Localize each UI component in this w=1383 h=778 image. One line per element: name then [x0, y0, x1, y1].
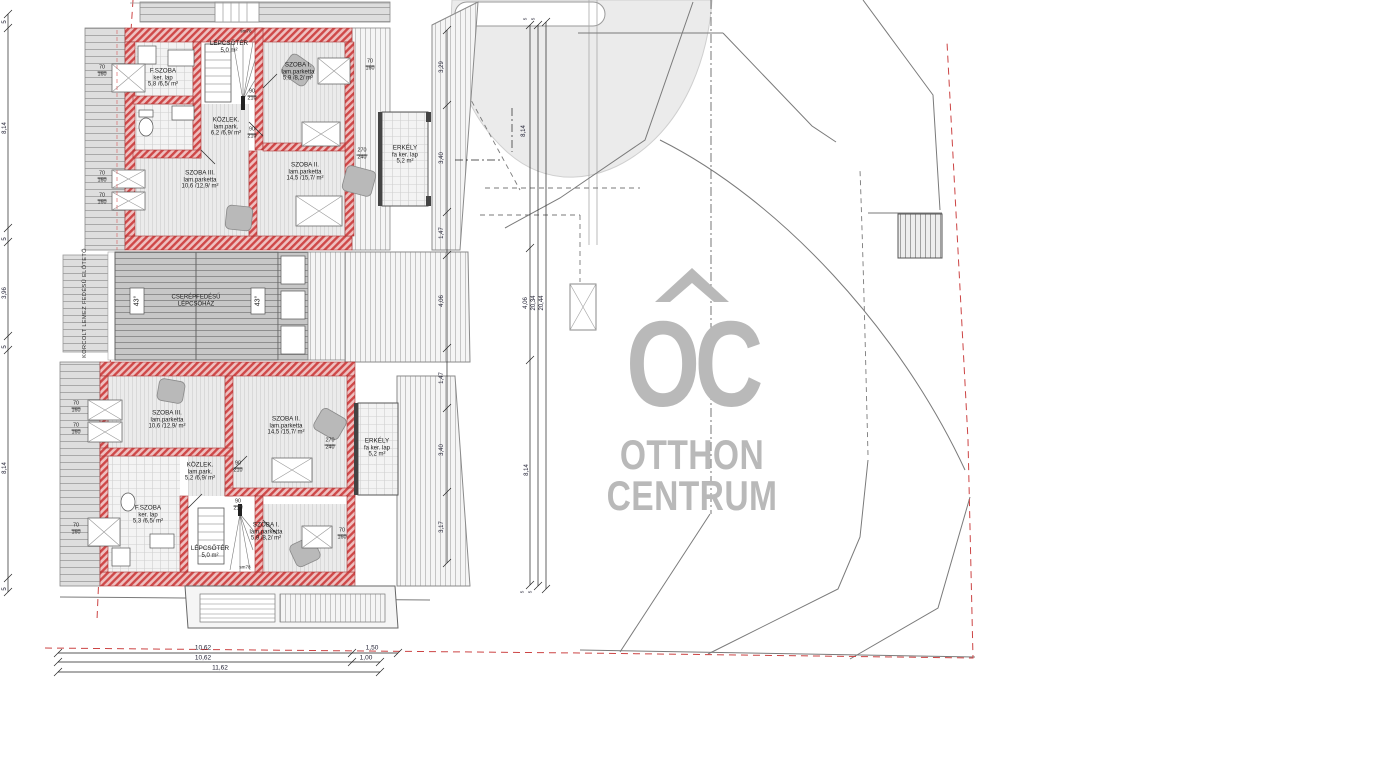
dim-left-0: 5: [2, 20, 8, 23]
room-label-lower-room1: SZOBA I. lam.parketta 5,9 /8,2/ m²: [249, 521, 282, 542]
room-label-upper-hall: KÖZLEK. lam.park. 6,2 /6,9/ m²: [211, 116, 241, 137]
otthon-centrum-logo-word2: CENTRUM: [607, 475, 778, 517]
room-label-upper-room2: SZOBA II. lam.parketta 14,5 /15,7/ m²: [286, 161, 323, 182]
room-label-lower-room2: SZOBA II. lam.parketta 14,5 /15,7/ m²: [267, 415, 304, 436]
dim-bottom-row1-1: 1,50: [366, 645, 379, 652]
window-size-label: 70160: [338, 529, 347, 542]
room-label-upper-balcony: ERKÉLY fa ker. lap 5,2 m²: [392, 144, 418, 165]
door-size-label: 90210: [234, 500, 243, 513]
dim-site-6: 3,17: [439, 521, 445, 533]
room-label-lower-bathroom: F.SZOBA ker. lap 5,3 /6,5/ m²: [133, 504, 163, 525]
otthon-centrum-logo-word1: OTTHON: [620, 434, 764, 476]
balcony-door-size-label: 270240: [357, 149, 368, 162]
dim-right-small-2: 5: [520, 591, 525, 594]
dim-right-top: 8,14: [521, 125, 527, 137]
dim-right-bottom: 8,14: [524, 464, 530, 476]
room-label-lower-hall: KÖZLEK. lam.park. 5,2 /6,9/ m²: [185, 461, 215, 482]
room-label-upper-stair: LÉPCSŐTÉR 5,0 m²: [210, 40, 248, 54]
door-size-label: 90210: [234, 462, 243, 475]
headroom-label-upper: sm78: [240, 28, 251, 33]
room-label-upper-room3: SZOBA III. lam.parketta 10,6 /12,9/ m²: [181, 169, 218, 190]
door-size-label: 90210: [248, 128, 257, 141]
roof-angle-left: 43°: [134, 296, 141, 307]
dim-left-2: 5: [2, 237, 8, 240]
dim-right-small-1: 5: [531, 18, 536, 21]
dim-site-0: 3,29: [439, 61, 445, 73]
window-size-label: 70160: [98, 172, 107, 185]
window-size-label: 70160: [98, 194, 107, 207]
room-label-upper-bathroom: F.SZOBA ker. lap 5,8 /6,5/ m²: [148, 67, 178, 88]
window-size-label: 70160: [72, 424, 81, 437]
dim-bottom-row2-1: 1,00: [360, 655, 373, 662]
dim-site-1: 3,40: [439, 152, 445, 164]
balcony-door-size-label: 270240: [325, 439, 336, 452]
floor-plan-page: OC OTTHON CENTRUM LÉPCSŐTÉR 5,0 m² sm78 …: [0, 0, 1383, 778]
dim-left-5: 8,14: [2, 462, 8, 474]
dim-right-total-2: 20,44: [539, 295, 545, 310]
room-label-upper-room1: SZOBA I. lam.parketta 5,9 /8,2/ m²: [281, 61, 314, 82]
dim-bottom-row2-0: 10,62: [195, 655, 211, 662]
window-size-label: 70160: [72, 402, 81, 415]
dim-left-4: 5: [2, 345, 8, 348]
window-size-label: 70160: [366, 60, 375, 73]
dim-bottom-row3-0: 11,62: [212, 665, 228, 672]
dim-left-6: 5: [2, 587, 8, 590]
door-size-label: 90210: [248, 90, 257, 103]
dim-left-1: 8,14: [2, 122, 8, 134]
canopy-label: KORCOLT LEMEZ FEDÉSŰ ELŐTETŐ: [82, 248, 88, 358]
room-label-lower-stair: LÉPCSŐTÉR 5,0 m²: [191, 545, 229, 559]
stairhouse-roof-label: CSERÉPFEDÉSŰ LÉPCSŐHÁZ: [171, 294, 220, 307]
dim-right-small-0: 5: [523, 18, 528, 21]
room-label-lower-room3: SZOBA III. lam.parketta 10,6 /12,9/ m²: [148, 409, 185, 430]
dim-site-5: 3,40: [439, 444, 445, 456]
otthon-centrum-logo-monogram: OC: [626, 303, 758, 425]
dim-site-4: 1,47: [439, 372, 445, 384]
room-label-lower-balcony: ERKÉLY fa ker. lap 5,2 m²: [364, 437, 390, 458]
window-size-label: 70160: [72, 524, 81, 537]
window-size-label: 70160: [98, 66, 107, 79]
dim-bottom-row1-0: 10,62: [195, 645, 211, 652]
dim-right-total-1: 20,34: [531, 295, 537, 310]
dim-right-total-0: 4,06: [523, 297, 529, 309]
headroom-label-lower: sm78: [239, 564, 250, 569]
dim-site-3: 4,06: [439, 295, 445, 307]
dim-left-3: 3,96: [2, 287, 8, 299]
roof-angle-right: 43°: [255, 296, 262, 307]
dim-site-2: 1,47: [439, 227, 445, 239]
dim-right-small-3: 5: [528, 591, 533, 594]
